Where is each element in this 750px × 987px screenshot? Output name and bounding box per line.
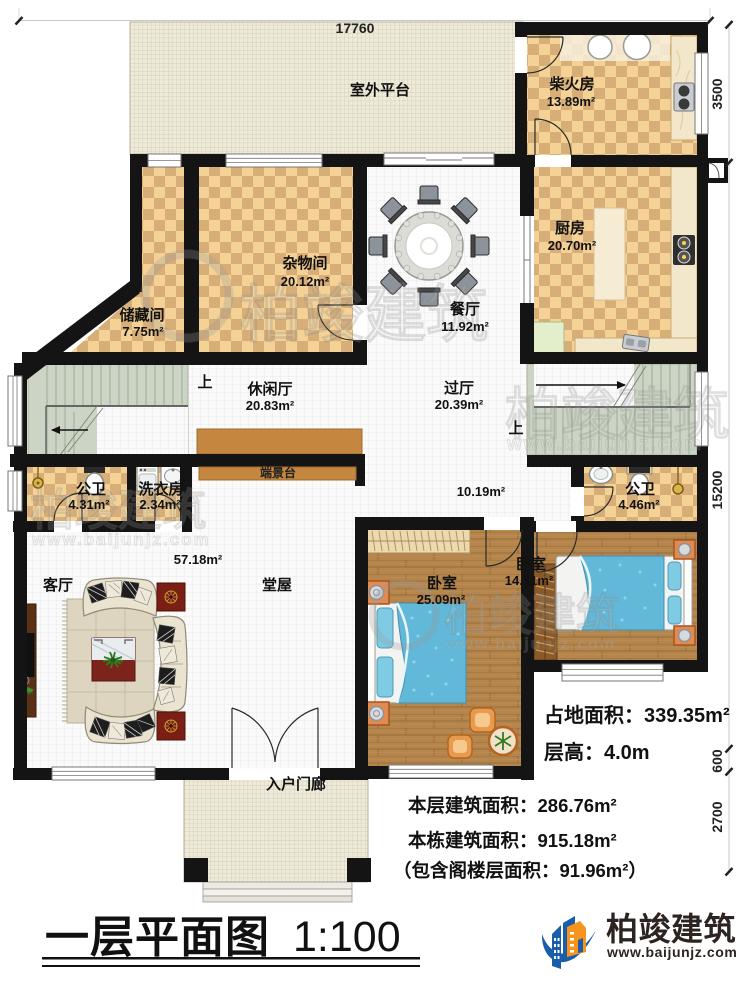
svg-text:堂屋: 堂屋 — [262, 576, 292, 594]
svg-text:占地面积：339.35m²: 占地面积：339.35m² — [544, 704, 730, 727]
svg-text:柏竣建筑: 柏竣建筑 — [606, 911, 736, 947]
svg-text:客厅: 客厅 — [42, 576, 73, 594]
svg-text:13.89m²: 13.89m² — [547, 94, 596, 109]
svg-text:10.19m²: 10.19m² — [457, 484, 506, 499]
svg-text:过厅: 过厅 — [444, 379, 474, 397]
svg-text:厨房: 厨房 — [555, 219, 585, 237]
svg-text:洗衣房: 洗衣房 — [138, 480, 183, 498]
svg-text:20.12m²: 20.12m² — [281, 274, 330, 289]
svg-text:15200: 15200 — [709, 470, 725, 509]
svg-text:4.46m²: 4.46m² — [618, 497, 660, 512]
svg-text:卧室: 卧室 — [516, 555, 546, 573]
svg-text:（包含阁楼层面积：91.96m²）: （包含阁楼层面积：91.96m²） — [393, 860, 647, 881]
svg-text:室外平台: 室外平台 — [350, 81, 410, 99]
svg-text:57.18m²: 57.18m² — [174, 552, 223, 567]
svg-text:公卫: 公卫 — [625, 481, 655, 498]
svg-text:www.baijunjz.com: www.baijunjz.com — [606, 944, 737, 960]
svg-text:层高：4.0m: 层高：4.0m — [544, 740, 650, 764]
svg-text:www.baijunjz.com: www.baijunjz.com — [31, 530, 211, 549]
svg-text:1:100: 1:100 — [293, 913, 401, 961]
svg-text:一层平面图: 一层平面图 — [45, 913, 270, 962]
svg-text:上: 上 — [508, 420, 523, 437]
svg-text:2700: 2700 — [709, 801, 725, 832]
svg-text:入户门廊: 入户门廊 — [266, 775, 326, 793]
svg-text:上: 上 — [197, 374, 212, 391]
svg-text:20.70m²: 20.70m² — [548, 238, 597, 253]
svg-text:休闲厅: 休闲厅 — [246, 380, 292, 398]
svg-text:14.31m²: 14.31m² — [505, 573, 554, 588]
svg-text:www.baijunjz.com: www.baijunjz.com — [506, 434, 703, 455]
svg-text:餐厅: 餐厅 — [450, 300, 480, 318]
svg-text:卧室: 卧室 — [427, 574, 457, 592]
svg-text:3500: 3500 — [709, 78, 725, 109]
svg-text:本层建筑面积：286.76m²: 本层建筑面积：286.76m² — [408, 795, 617, 816]
svg-text:2.34m²: 2.34m² — [139, 497, 181, 512]
svg-text:柏竣建筑: 柏竣建筑 — [444, 591, 620, 640]
svg-text:25.09m²: 25.09m² — [417, 592, 466, 607]
svg-text:7.75m²: 7.75m² — [122, 324, 164, 339]
svg-text:杂物间: 杂物间 — [282, 254, 327, 272]
svg-text:11.92m²: 11.92m² — [441, 319, 489, 334]
svg-text:储藏间: 储藏间 — [119, 306, 164, 324]
svg-text:柴火房: 柴火房 — [548, 75, 594, 93]
svg-text:20.83m²: 20.83m² — [246, 398, 295, 413]
svg-text:公卫: 公卫 — [76, 481, 106, 498]
svg-text:4.31m²: 4.31m² — [68, 497, 110, 512]
svg-text:600: 600 — [709, 749, 725, 773]
svg-text:20.39m²: 20.39m² — [435, 397, 484, 412]
svg-text:本栋建筑面积：915.18m²: 本栋建筑面积：915.18m² — [408, 830, 617, 851]
svg-text:17760: 17760 — [336, 20, 375, 36]
svg-text:端景台: 端景台 — [260, 465, 296, 480]
svg-text:www.baijunjz.com: www.baijunjz.com — [445, 636, 616, 653]
